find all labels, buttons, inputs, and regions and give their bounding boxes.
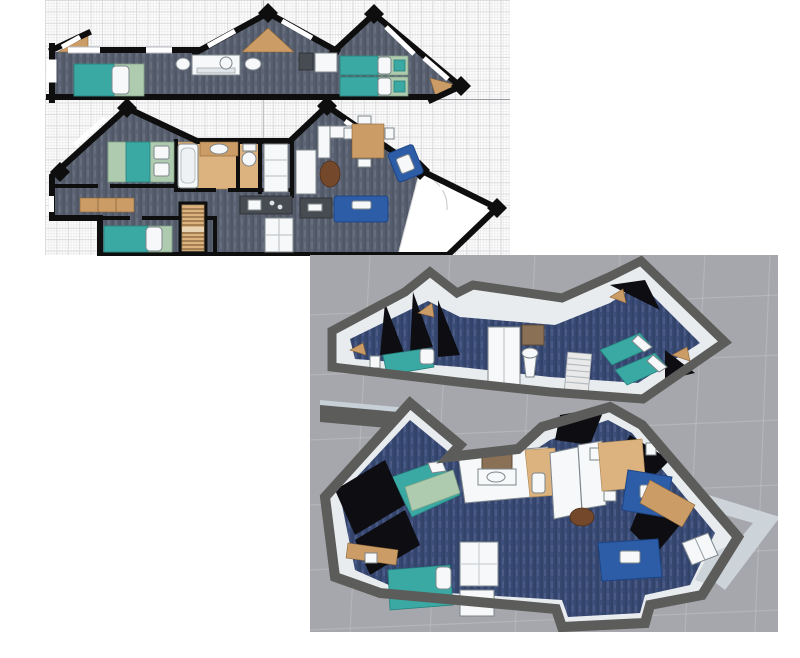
upper-3d-nightstand bbox=[370, 356, 380, 368]
upper-3d-stairs bbox=[564, 352, 591, 392]
washbasin-right[interactable] bbox=[245, 58, 261, 70]
tall-cabinet-bath[interactable] bbox=[264, 144, 288, 192]
floor-plans-3d bbox=[310, 255, 778, 632]
main-3d-sofa bbox=[598, 539, 662, 581]
main-floor-3d[interactable] bbox=[325, 403, 778, 627]
tall-cabinet-living[interactable] bbox=[296, 150, 316, 194]
coffee-table[interactable] bbox=[320, 161, 340, 187]
sideboard[interactable] bbox=[80, 198, 134, 212]
upper-floor-plan[interactable] bbox=[49, 3, 471, 100]
shower[interactable] bbox=[192, 55, 240, 75]
appliance-upper[interactable] bbox=[299, 53, 313, 70]
upper-3d-wardrobe bbox=[488, 327, 520, 385]
main-3d-coffee-table bbox=[570, 508, 594, 526]
double-bed[interactable] bbox=[108, 142, 174, 182]
wardrobe-upper[interactable] bbox=[315, 53, 337, 72]
sofa[interactable] bbox=[334, 196, 388, 222]
main-floor-plan[interactable] bbox=[49, 96, 507, 255]
upper-floor-3d[interactable] bbox=[320, 261, 725, 432]
twin-bed-1[interactable] bbox=[340, 56, 408, 75]
kitchen-appliances[interactable] bbox=[265, 218, 293, 252]
washbasin-left[interactable] bbox=[176, 58, 190, 70]
twin-bed-2[interactable] bbox=[340, 77, 408, 96]
kitchen-counter[interactable] bbox=[240, 196, 292, 214]
toilet-upper[interactable] bbox=[220, 57, 232, 69]
toilet-main[interactable] bbox=[242, 144, 256, 166]
upper-single-bed[interactable] bbox=[74, 64, 144, 96]
lower-single-bed[interactable] bbox=[104, 226, 172, 252]
tv-bench[interactable] bbox=[300, 198, 332, 218]
floor-plan-3d-panel[interactable] bbox=[310, 255, 778, 632]
bathtub[interactable] bbox=[178, 144, 198, 188]
stairs-2d[interactable] bbox=[182, 205, 204, 251]
floor-plans-2d[interactable] bbox=[0, 0, 510, 256]
vanity-sink[interactable] bbox=[200, 142, 238, 156]
floorplanner-workspace bbox=[0, 0, 800, 658]
